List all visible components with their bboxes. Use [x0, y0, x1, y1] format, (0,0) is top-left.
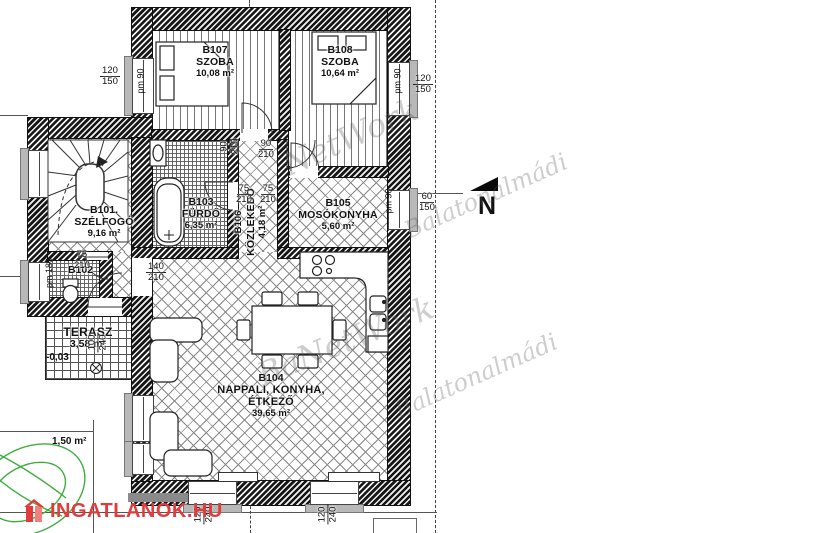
dim-window-tl: 120150 — [100, 66, 120, 87]
room-id: B104 — [196, 372, 346, 384]
room-label-b108: B108 SZOBA 10,64 m² — [305, 44, 375, 80]
north-arrow-icon — [470, 177, 498, 191]
sliding-panel-right — [328, 472, 380, 482]
dim-door-entry: 100240 — [87, 333, 108, 353]
room-label-b105: B105 MOSÓKONYHA 5,60 m² — [298, 197, 378, 233]
logo-text: INGATLANOK.HU — [50, 500, 223, 523]
room-label-b107: B107 SZOBA 10,08 m² — [180, 44, 250, 80]
floor-plan: B107 SZOBA 10,08 m² B108 SZOBA 10,64 m² … — [0, 0, 819, 533]
floor-bathroom — [152, 140, 228, 250]
dim-terrace-door-right: 120240 — [317, 505, 338, 525]
room-name: MOSÓKONYHA — [298, 209, 378, 221]
door-opening-laundry — [290, 166, 318, 178]
window-living-2 — [132, 443, 154, 475]
dim-door-kitchen: 140210 — [146, 262, 166, 283]
dim-door-corr: 75210 — [258, 184, 278, 205]
room-area: 10,64 m² — [305, 68, 375, 80]
room-area: 5,60 m² — [298, 221, 378, 233]
dim-window-tr: 120150 — [413, 74, 433, 95]
wall-b107-b108 — [280, 30, 290, 130]
watermark-city-2: Balatonalmádi — [390, 328, 562, 425]
extension-line — [0, 115, 28, 116]
dim-door-hall-b: 90210 — [256, 139, 276, 160]
window-living-1 — [132, 395, 154, 442]
room-id: B103 — [170, 196, 232, 208]
axis-line-right — [435, 0, 436, 533]
dim-parapet-right: pm 90 — [384, 188, 394, 213]
terrace-level: -0,03 — [46, 352, 69, 363]
floor-living — [152, 252, 388, 481]
room-name: SZÉLFOGÓ — [68, 216, 140, 228]
dim-parapet-tl: pm 90 — [136, 68, 146, 93]
room-label-b101: B101. SZÉLFOGÓ 9,16 m² — [68, 204, 140, 240]
dim-parapet-tr: pm 90 — [393, 68, 403, 93]
dim-door-hall-a: 90210 — [219, 137, 240, 157]
wall-hall-right — [278, 140, 288, 252]
room-id: B105 — [298, 197, 378, 209]
room-id: B101. — [68, 204, 140, 216]
dim-door-wc: 75210 — [72, 250, 92, 271]
wall-top — [132, 8, 410, 30]
room-id: B108 — [305, 44, 375, 56]
room-name: FÜRDŐ — [170, 208, 232, 220]
room-label-b104: B104 NAPPALI, KONYHA, ÉTKEZŐ 39,65 m² — [196, 372, 346, 420]
room-area: 9,16 m² — [68, 228, 140, 240]
dim-window-right: 60150 — [417, 192, 437, 213]
room-name: SZOBA — [305, 56, 375, 68]
dim-parapet-wc: pm 180 — [44, 258, 54, 288]
ingatlanok-logo[interactable]: INGATLANOK.HU — [24, 498, 223, 524]
room-name: SZOBA — [180, 56, 250, 68]
wall-mid-left — [132, 248, 238, 258]
room-area: 39,65 m² — [196, 408, 346, 420]
room-id: B107 — [180, 44, 250, 56]
door-opening-entry — [88, 298, 122, 316]
room-name: NAPPALI, KONYHA, ÉTKEZŐ — [196, 384, 346, 408]
wall-mid-right — [278, 248, 388, 258]
sliding-panel-left — [218, 472, 258, 482]
garden-area-label: 1,50 m² — [52, 436, 86, 447]
window-entry-hall — [28, 150, 50, 198]
terrace-door-right — [310, 481, 359, 505]
neighbor-outline — [373, 518, 417, 533]
dim-door-bath: 75210 — [234, 184, 254, 205]
room-area: 6,35 m² — [170, 220, 232, 232]
logo-house-icon — [24, 498, 46, 524]
room-label-b103: B103 FÜRDŐ 6,35 m² — [170, 196, 232, 232]
room-area: 10,08 m² — [180, 68, 250, 80]
site-line — [0, 431, 93, 432]
north-label: N — [478, 192, 496, 221]
